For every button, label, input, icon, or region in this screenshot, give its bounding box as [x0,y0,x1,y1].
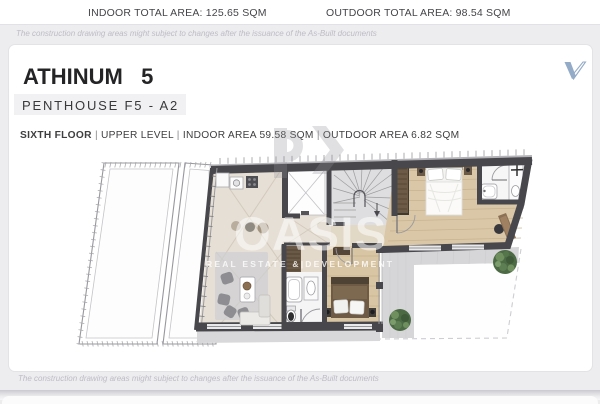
svg-text:OASIS: OASIS [234,207,388,260]
svg-text:REAL ESTATE &|DEVELOPMENT: REAL ESTATE &|DEVELOPMENT [206,259,394,269]
